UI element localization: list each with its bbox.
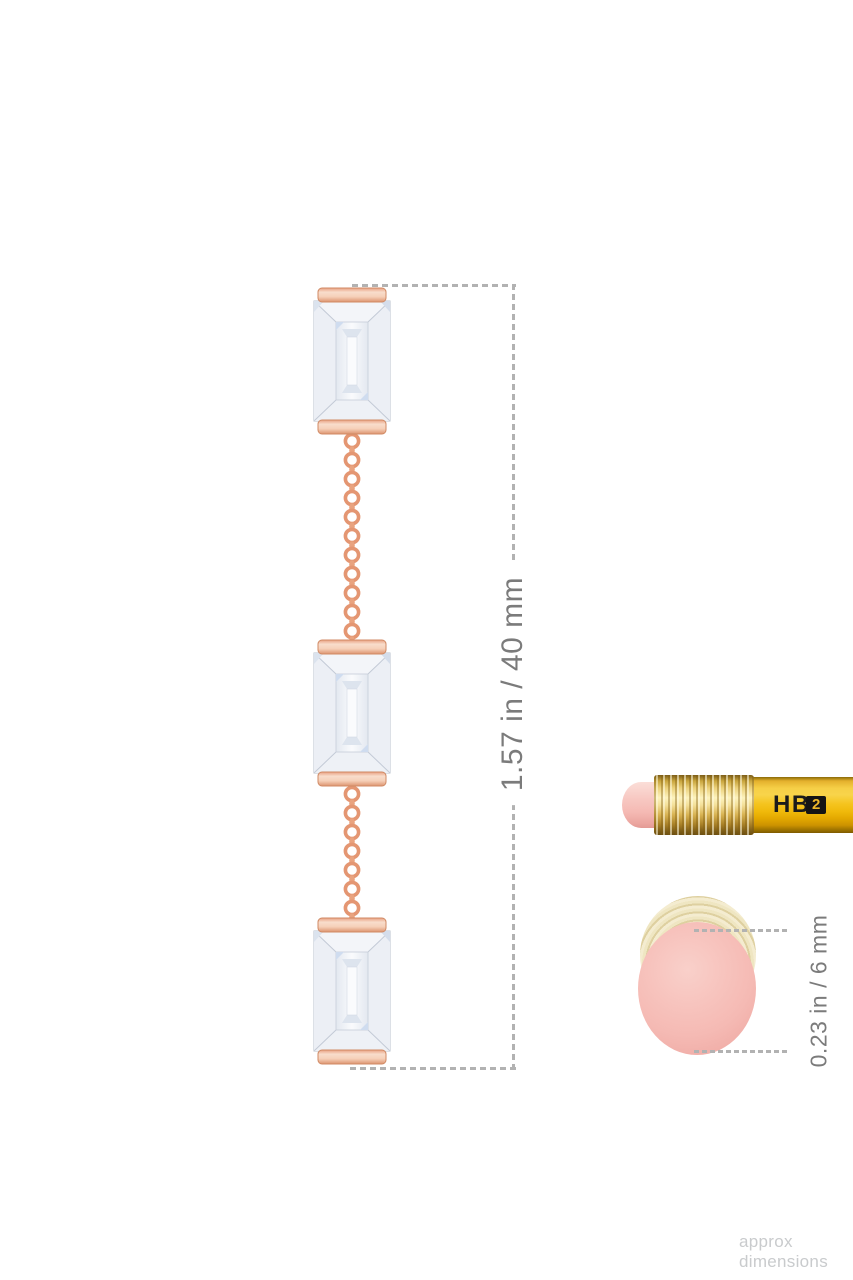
eraser-dimension-label: 0.23 in / 6 mm [808, 915, 831, 1068]
baguette-diamond-bottom [314, 918, 390, 1064]
pencil-illustration: HB 2 [622, 770, 853, 840]
pencil-number-badge: 2 [806, 796, 826, 814]
baguette-diamond-middle [314, 640, 390, 786]
eraser-dimension-line-bottom [694, 1050, 788, 1053]
pencil-ferrule [654, 775, 754, 835]
product-dimension-diagram: 1.57 in / 40 mm HB 2 0.23 in / 6 mm appr… [0, 0, 853, 1280]
pencil-eraser-end-view [638, 922, 756, 1055]
eraser-dimension-line-top [694, 929, 788, 932]
drop-dimension-line-top [352, 284, 516, 287]
earring-illustration [300, 280, 404, 1080]
drop-dimension-line-bottom [350, 1067, 516, 1070]
chain-segment-lower [345, 787, 358, 921]
approx-dimensions-note: approx dimensions [739, 1232, 853, 1272]
drop-dimension-label: 1.57 in / 40 mm [490, 563, 536, 805]
pencil-body: HB 2 [752, 777, 853, 833]
baguette-diamond-top [314, 288, 390, 434]
chain-segment-upper [345, 434, 358, 644]
